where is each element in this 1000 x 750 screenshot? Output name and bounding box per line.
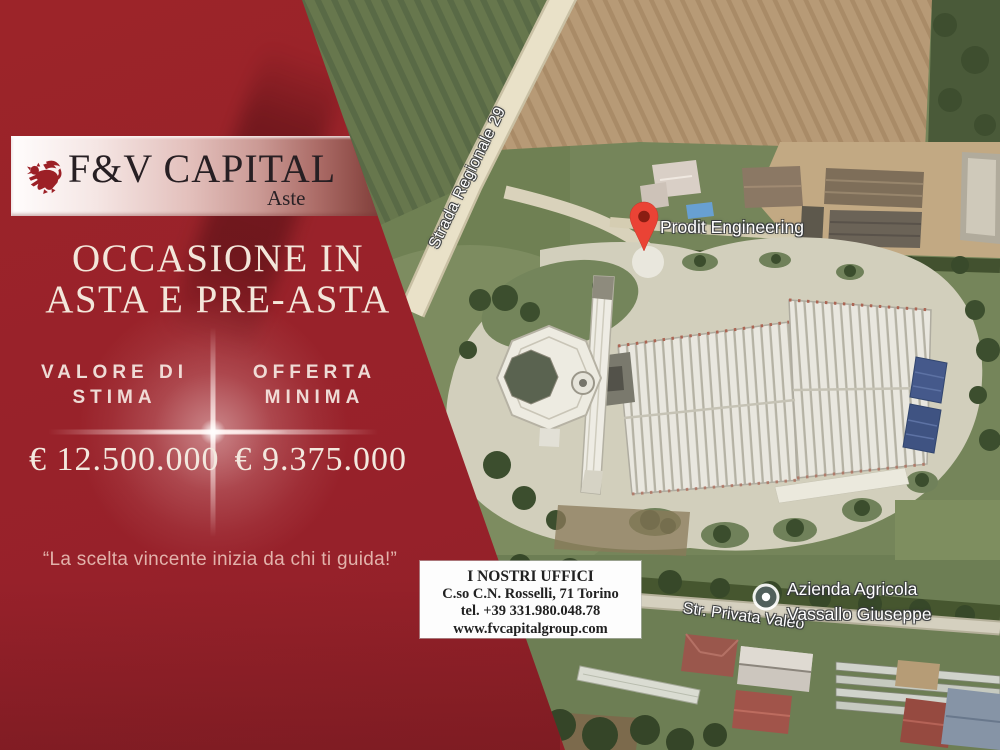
pricing-values: € 12.500.000 € 9.375.000 xyxy=(0,441,436,479)
map-farm-label: Azienda Agricola Vassallo Giuseppe xyxy=(787,577,932,627)
contact-title: I NOSTRI UFFICI xyxy=(420,568,641,586)
farm-poi-icon xyxy=(750,581,782,613)
lion-logo-icon xyxy=(27,156,65,196)
business-map-pin-icon xyxy=(629,201,659,253)
estimate-value: € 12.500.000 xyxy=(29,441,220,479)
brand-subtitle: Aste xyxy=(267,186,306,211)
brand-banner: F&V CAPITAL Aste xyxy=(11,136,397,216)
contact-card: I NOSTRI UFFICI C.so C.N. Rosselli, 71 T… xyxy=(420,561,641,638)
contact-website: www.fvcapitalgroup.com xyxy=(420,621,641,639)
slogan-quote: “La scelta vincente inizia da chi ti gui… xyxy=(10,549,430,571)
minimum-offer-value: € 9.375.000 xyxy=(235,441,408,479)
contact-phone: tel. +39 331.980.048.78 xyxy=(420,603,641,621)
map-farm-label-line1: Azienda Agricola xyxy=(787,577,932,602)
auction-poster: Strada Regionale 29 Str. Privata Valeo A… xyxy=(0,0,1000,750)
contact-address: C.so C.N. Rosselli, 71 Torino xyxy=(420,586,641,604)
brand-name: F&V CAPITAL xyxy=(68,145,336,192)
map-business-label: Prodit Engineering xyxy=(660,217,804,238)
map-farm-label-line2: Vassallo Giuseppe xyxy=(787,602,932,627)
headline-line1: OCCASIONE IN xyxy=(0,238,436,279)
